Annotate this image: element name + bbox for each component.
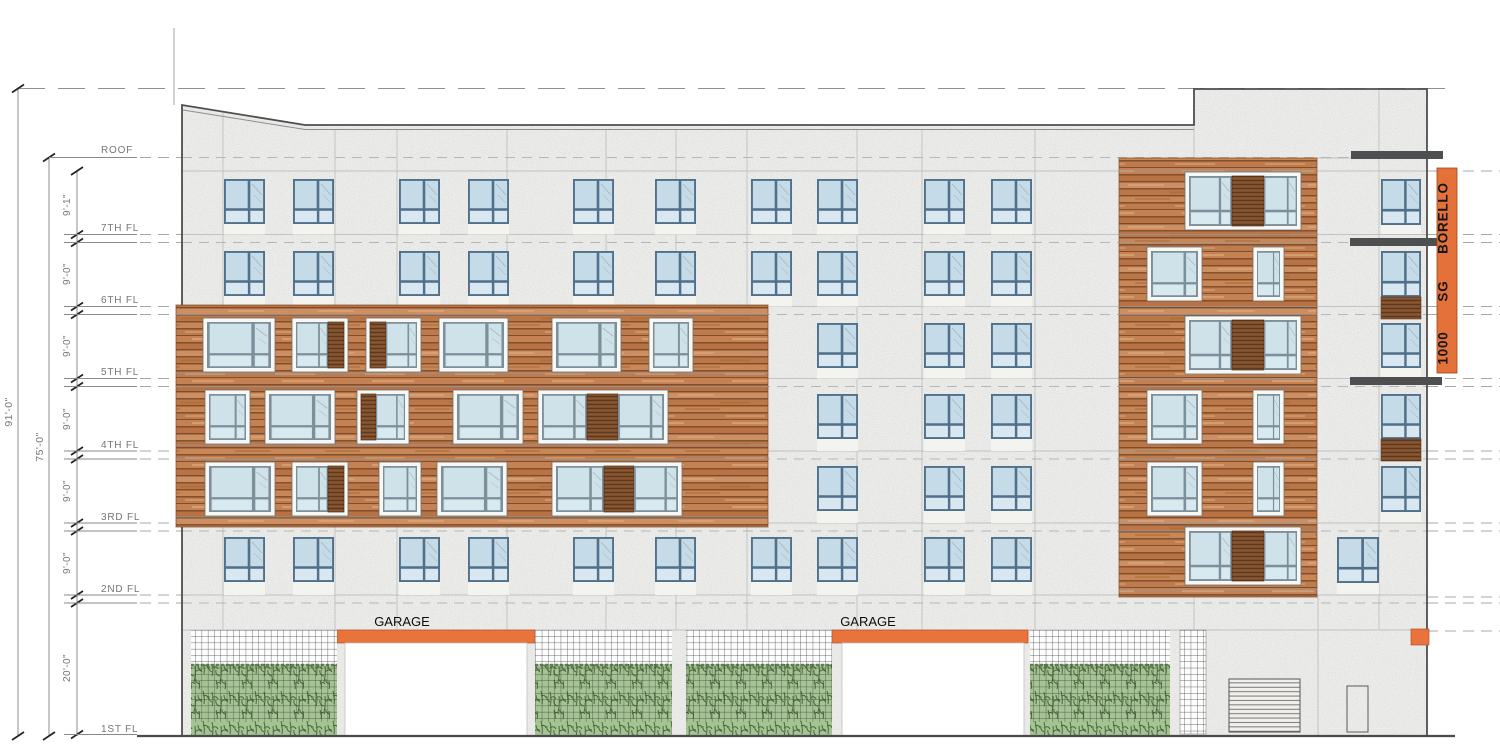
svg-text:91'-0": 91'-0" [3, 397, 15, 426]
svg-text:75'-0": 75'-0" [34, 432, 46, 461]
svg-text:1ST FL: 1ST FL [101, 724, 138, 735]
svg-text:6TH FL: 6TH FL [101, 295, 139, 306]
svg-text:9'-0": 9'-0" [62, 480, 73, 502]
svg-text:3RD FL: 3RD FL [101, 512, 140, 523]
svg-text:9'-0": 9'-0" [62, 335, 73, 357]
svg-text:2ND FL: 2ND FL [101, 584, 140, 595]
svg-text:4TH FL: 4TH FL [101, 440, 139, 451]
svg-text:1000: 1000 [1436, 331, 1451, 364]
svg-text:ROOF: ROOF [101, 145, 133, 156]
svg-text:5TH FL: 5TH FL [101, 367, 139, 378]
svg-text:9'-0": 9'-0" [62, 408, 73, 430]
svg-text:BORELLO: BORELLO [1436, 182, 1451, 254]
svg-text:7TH FL: 7TH FL [101, 223, 139, 234]
svg-text:9'-0": 9'-0" [62, 263, 73, 285]
svg-text:20'-0": 20'-0" [62, 654, 73, 682]
svg-text:9'-0": 9'-0" [62, 552, 73, 574]
svg-text:GARAGE: GARAGE [840, 614, 896, 629]
svg-text:SG: SG [1436, 280, 1451, 301]
svg-text:9'-1": 9'-1" [62, 194, 73, 216]
svg-text:GARAGE: GARAGE [374, 614, 430, 629]
